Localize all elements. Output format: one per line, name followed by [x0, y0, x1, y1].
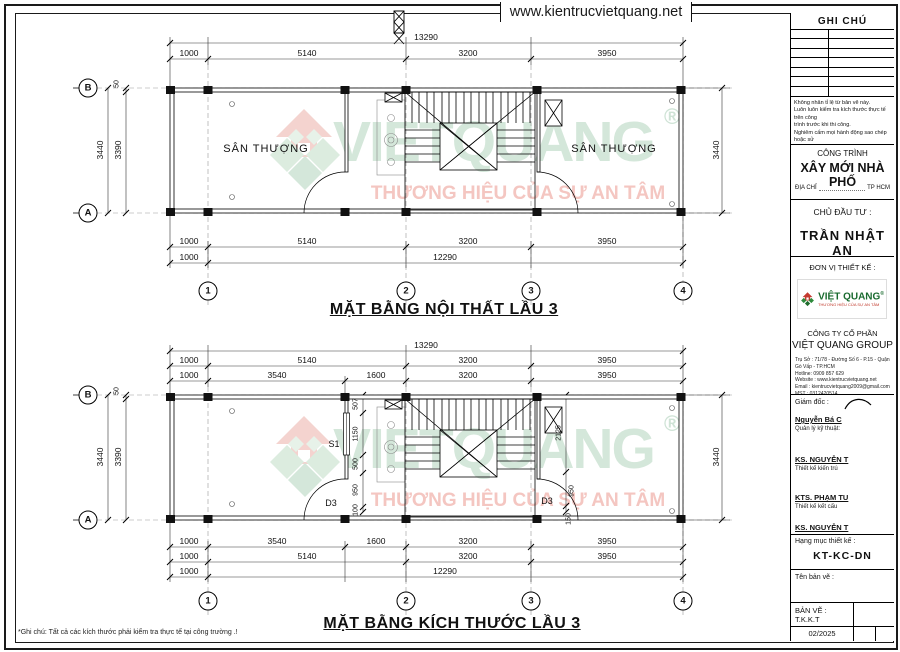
dim-label: 1000: [180, 551, 199, 561]
header-website-url: www.kientrucvietquang.net: [500, 2, 692, 22]
dim-label: 3950: [598, 370, 617, 380]
client-label: CHỦ ĐẦU TƯ :: [791, 207, 894, 217]
room-label-terrace-right: SÂN THƯỢNG: [571, 143, 656, 155]
notes-header: GHI CHÚ: [791, 13, 894, 30]
dim-label: 3440: [95, 141, 105, 160]
notes-table-cell: [791, 39, 829, 48]
dim-label: 1000: [180, 252, 199, 262]
logo-wordmark: VIỆT QUANG®: [818, 291, 884, 302]
grid-bubble-1: 1: [199, 282, 218, 301]
grid-bubble-A: A: [79, 204, 98, 223]
sheet-name-section: Tên bản vẽ :: [791, 570, 894, 603]
dim-label: 50: [114, 80, 121, 88]
vietquang-logo-icon: [800, 286, 815, 312]
grid-bubble-A: A: [79, 511, 98, 530]
date-row: 02/2025: [791, 627, 894, 641]
drawing-sheet: VIETQUANG ® THƯƠNG HIỆU CỦA SỰ AN TÂM VI…: [0, 0, 900, 652]
dim-label: 3200: [459, 355, 478, 365]
door-label-d3-left: D3: [325, 498, 337, 508]
dim-label: 3200: [459, 536, 478, 546]
dim-label: 5140: [298, 48, 317, 58]
grid-bubble-2: 2: [397, 592, 416, 611]
notes-table-cell: [791, 49, 829, 58]
date-value: 02/2025: [791, 627, 854, 641]
north-arrow-icon: [394, 11, 404, 44]
grid-bubble-3: 3: [522, 282, 541, 301]
signatures-section: Giám đốc : Nguyễn Bá C Quản lý kỹ thuật:…: [791, 395, 894, 535]
notes-table-cell: [791, 68, 829, 77]
signer2-name: KTS. PHẠM TU: [795, 493, 848, 502]
client-section: CHỦ ĐẦU TƯ : TRẦN NHẬT AN: [791, 200, 894, 257]
grid-bubble-4: 4: [674, 282, 693, 301]
company-name: VIỆT QUANG GROUP: [791, 340, 894, 351]
plan-linework: [0, 0, 900, 652]
logo-registered-icon: ®: [880, 291, 884, 297]
dim-label: 13290: [414, 340, 438, 350]
notes-table-cell: [829, 68, 894, 77]
category-section: Hạng mục thiết kế : KT-KC-DN: [791, 535, 894, 570]
dim-label: 150: [566, 513, 573, 525]
dim-label: 13290: [414, 32, 438, 42]
dim-label: 3200: [459, 370, 478, 380]
notes-table-cell: [829, 87, 894, 96]
dim-label: 3440: [711, 448, 721, 467]
dim-label: 1000: [180, 536, 199, 546]
company-type: CÔNG TY CỔ PHẦN: [791, 329, 894, 338]
dim-label: 1000: [180, 236, 199, 246]
sheet-footnote: *Ghi chú: Tất cả các kích thước phải kiể…: [18, 629, 238, 636]
company-logo: VIỆT QUANG® THƯƠNG HIỆU CỦA SỰ AN TÂM: [797, 279, 887, 319]
notes-table-cell: [829, 30, 894, 39]
dim-label: 3950: [598, 236, 617, 246]
drawing-number-row: BẢN VẼ : T.K.K.T: [791, 603, 894, 627]
dim-label: 3540: [268, 536, 287, 546]
plan1-title: MẶT BẰNG NỘI THẤT LẦU 3: [330, 301, 558, 319]
dim-label: 5140: [298, 236, 317, 246]
dim-label: 1600: [367, 370, 386, 380]
signer1-name: KS. NGUYỄN T: [795, 455, 848, 464]
grid-bubble-3: 3: [522, 592, 541, 611]
director-name: Nguyễn Bá C: [795, 415, 842, 424]
grid-bubble-B: B: [79, 386, 98, 405]
grid-bubble-1: 1: [199, 592, 218, 611]
title-block: GHI CHÚ Không nhân tỉ lệ từ bản vẽ này. …: [790, 13, 894, 641]
director-signature: [843, 397, 873, 411]
grid-bubble-4: 4: [674, 592, 693, 611]
plan2-building: [166, 393, 686, 523]
door-label-d3-right: D3: [541, 496, 553, 506]
address-label: ĐỊA CHỈ: [795, 185, 817, 191]
dim-label: 950: [353, 484, 360, 496]
dim-label: 3950: [598, 355, 617, 365]
window-label-s1: S1: [328, 439, 339, 449]
dim-label: 3440: [711, 141, 721, 160]
dim-label: 3200: [459, 48, 478, 58]
notes-table-cell: [829, 39, 894, 48]
notes-table-cell: [829, 58, 894, 67]
signer2-role: Thiết kế kết cấu: [795, 504, 837, 510]
project-label: CÔNG TRÌNH: [791, 149, 894, 158]
drawing-number: BẢN VẼ : T.K.K.T: [791, 603, 854, 626]
project-section: CÔNG TRÌNH XÂY MỚI NHÀ PHỐ ĐỊA CHỈ TP HC…: [791, 145, 894, 200]
notes-table-cell: [829, 49, 894, 58]
grid-bubble-2: 2: [397, 282, 416, 301]
director-role: Quản lý kỹ thuật:: [795, 426, 840, 432]
dim-label: 1000: [180, 370, 199, 380]
client-name: TRẦN NHẬT AN: [791, 228, 894, 257]
address-row: ĐỊA CHỈ TP HCM: [795, 183, 890, 191]
notes-table-cell: [791, 77, 829, 86]
plan2-dimension-lines: [108, 345, 730, 582]
dim-label: 3950: [598, 536, 617, 546]
dim-label: 1000: [180, 355, 199, 365]
category-code: KT-KC-DN: [791, 550, 894, 562]
signer3-name: KS. NGUYỄN T: [795, 523, 848, 532]
date-empty-cell: [854, 627, 876, 641]
notes-text: Không nhân tỉ lệ từ bản vẽ này. Luôn luô…: [791, 97, 894, 145]
notes-table-cell: [791, 87, 829, 96]
dim-label: 100: [353, 504, 360, 516]
logo-tagline: THƯƠNG HIỆU CỦA SỰ AN TÂM: [818, 302, 884, 307]
dim-label: 12290: [433, 252, 457, 262]
dim-label: 3540: [268, 370, 287, 380]
plan2-title: MẶT BẰNG KÍCH THƯỚC LẦU 3: [323, 615, 580, 633]
dim-label: 3390: [113, 141, 123, 160]
notes-table-cell: [791, 30, 829, 39]
dim-label: 5140: [298, 551, 317, 561]
grid-bubble-ticks: [73, 88, 80, 520]
room-label-terrace-left: SÂN THƯỢNG: [223, 143, 308, 155]
sheet-name-label: Tên bản vẽ :: [795, 574, 834, 581]
dim-label: 507: [353, 398, 360, 410]
designer-section: ĐƠN VỊ THIẾT KẾ : VIỆT QUANG® THƯƠNG HIỆ…: [791, 257, 894, 395]
dim-label: 1150: [353, 426, 360, 441]
dim-label: 12290: [433, 566, 457, 576]
dim-label: 3200: [459, 236, 478, 246]
signer1-role: Thiết kế kiến trú: [795, 466, 838, 472]
address-city: TP HCM: [867, 185, 890, 191]
notes-table: [791, 30, 894, 97]
dim-label: 50: [114, 387, 121, 395]
dim-label: 950: [569, 485, 576, 497]
notes-table-cell: [791, 58, 829, 67]
designer-label: ĐƠN VỊ THIẾT KẾ :: [791, 263, 894, 272]
dim-label: 5140: [298, 355, 317, 365]
category-label: Hạng mục thiết kế :: [795, 538, 855, 545]
dim-label: 3200: [459, 551, 478, 561]
date-empty-cell: [876, 627, 894, 641]
dim-label: 2125: [556, 425, 563, 441]
dim-label: 1600: [367, 536, 386, 546]
drawing-number-empty-cell: [854, 603, 894, 626]
notes-table-cell: [829, 77, 894, 86]
dim-label: 1000: [180, 48, 199, 58]
dim-label: 3950: [598, 551, 617, 561]
director-label: Giám đốc :: [795, 399, 829, 406]
company-contact: Trụ Sở : 71/78 - Đường Số 6 - P.15 - Quậ…: [795, 357, 892, 395]
grid-bubble-B: B: [79, 79, 98, 98]
dim-label: 3440: [95, 448, 105, 467]
dim-label: 500: [353, 458, 360, 470]
dim-label: 3950: [598, 48, 617, 58]
dim-label: 1000: [180, 566, 199, 576]
dim-label: 3390: [113, 448, 123, 467]
address-dots: [819, 183, 865, 191]
